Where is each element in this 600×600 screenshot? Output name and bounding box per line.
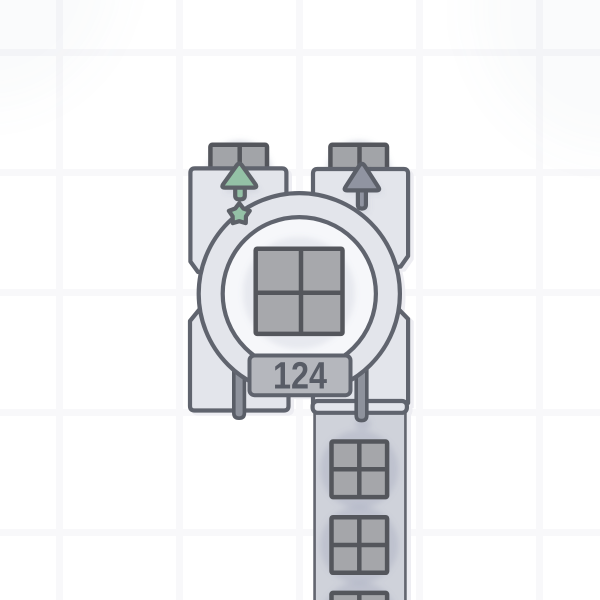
- svg-text:124: 124: [273, 356, 327, 398]
